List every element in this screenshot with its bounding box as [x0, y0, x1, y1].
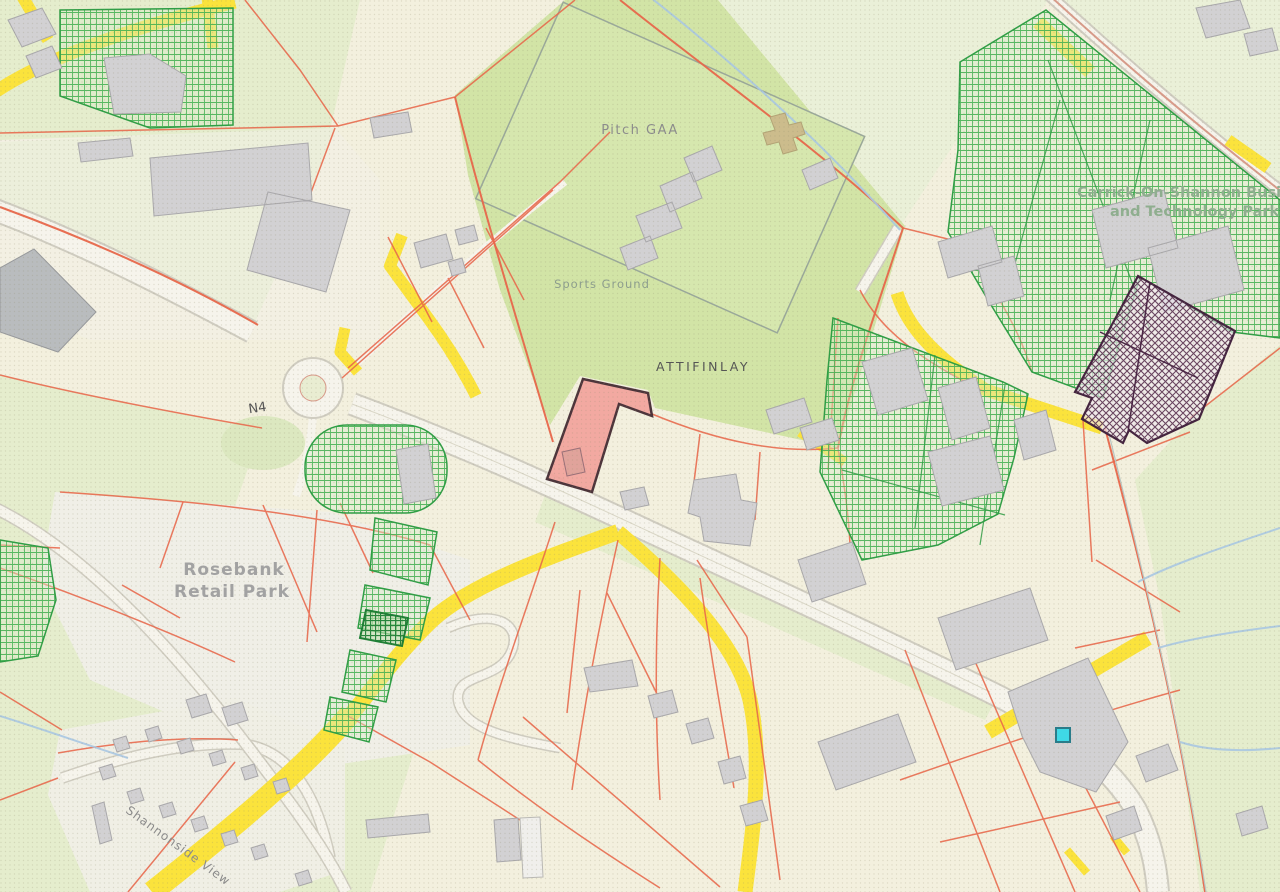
selection-marker[interactable] — [1056, 728, 1070, 742]
label-townland: ATTIFINLAY — [656, 359, 750, 374]
label-business-park-2: and Technology Park — [1110, 204, 1280, 220]
label-business-park-1: Carrick-On-Shannon Busi — [1077, 185, 1280, 201]
tree-area — [221, 416, 305, 470]
roundabout-island — [300, 375, 326, 401]
label-retail-park-1: Rosebank — [183, 560, 284, 580]
label-retail-park-2: Retail Park — [174, 582, 290, 602]
building — [520, 817, 543, 878]
cadastral-map-viewport[interactable]: Pitch GAA Sports Ground ATTIFINLAY N4 Ro… — [0, 0, 1280, 892]
label-sports-ground: Sports Ground — [554, 277, 650, 291]
roundabout — [283, 358, 343, 418]
label-pitch-gaa: Pitch GAA — [601, 123, 679, 138]
map-canvas[interactable]: Pitch GAA Sports Ground ATTIFINLAY N4 Ro… — [0, 0, 1280, 892]
label-road-n4: N4 — [248, 400, 268, 417]
